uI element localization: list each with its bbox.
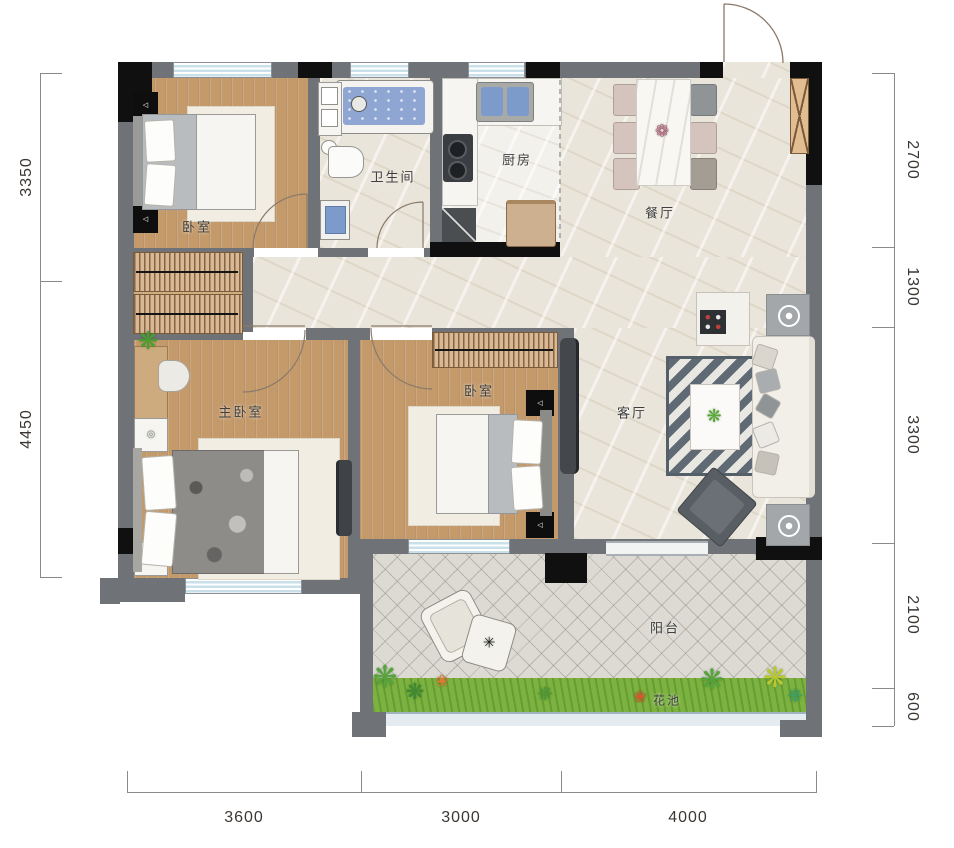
dim-left-0: 3350 [18,157,36,197]
flowerbed-plant-icon: ❋ [787,687,802,705]
kitchen-sink-basin-1 [481,87,503,116]
counter-basin-1 [321,87,338,105]
dim-right-3: 2100 [903,595,921,635]
bedroom-top-pillow-1 [144,119,176,163]
bedroom-mid-bed-sheet [436,414,492,514]
closet-rod [136,313,238,315]
master-bottom-ledge [100,594,185,602]
island-cooktop [700,310,726,334]
dining-chair [690,84,717,116]
master-desk-chair [158,360,190,392]
sofa-pillow [754,450,780,476]
flowerbed-plant-icon: ❋ [537,685,552,703]
dim-right-0: 2700 [903,140,921,180]
coffee-table-plant-icon: ❋ [706,407,721,425]
dining-chair [690,122,717,154]
dim-bottom-0: 3600 [224,809,264,827]
dining-chair [690,158,717,190]
dim-right-1: 1300 [903,267,921,307]
bedroom-top-pillow-2 [144,163,177,207]
bottom-dim-tick [127,771,128,792]
kitchen-sink [476,82,534,122]
toilet [328,146,364,178]
flowerbed-plant-icon: ❋ [763,664,786,692]
side-table-lamp-icon [778,515,800,537]
balcony-sill [373,712,806,726]
right-dim-tick [872,543,894,544]
tv-panel [560,338,579,474]
bedroom-mid-wardrobe [432,332,558,368]
entry-jamb-left [700,62,723,78]
top-wall-column-b [526,62,560,78]
bedroom-top-bed-sheet [196,114,256,210]
entry-opening-floor [723,62,790,78]
dim-bottom-2: 4000 [668,809,708,827]
bottom-dim-line [127,792,817,793]
right-dim-tick [872,726,894,727]
bedroom-mid-label: 卧室 [464,381,494,400]
bedroom-mid-window [408,539,510,554]
closet-rod [435,349,553,351]
stove-burner-1 [448,140,467,159]
flowerbed-flower-icon: ❀ [435,674,448,690]
master-nightstand-1: ◎ [134,418,168,452]
closet-top [133,252,243,292]
right-dim-tick [872,73,894,74]
bottom-dim-tick [361,771,362,792]
top-wall-column-a [298,62,332,78]
left-dim-line [40,73,41,578]
flowerbed-flower-icon: ❀ [633,690,646,706]
side-table-top [766,294,810,336]
closet-rod [136,271,238,273]
bedroom-top-nightstand-2: ◁ [133,206,158,233]
bedroom-top-bed-headboard [133,116,142,206]
master-bed-sheet [264,450,299,574]
bathtub [336,80,434,134]
right-dim-tick [872,247,894,248]
living-island [696,292,750,346]
dim-right-4: 600 [903,692,921,722]
lamp-icon: ◁ [143,102,148,109]
plant-icon: ❋ [138,330,158,354]
bathroom-label: 卫生间 [370,167,415,186]
side-table-bottom [766,504,810,546]
bedroom-mid-pillow-1 [511,419,543,465]
left-wall-black-bottom [118,528,134,554]
bottom-dim-tick [816,771,817,792]
bedroom-top-label: 卧室 [182,217,212,236]
bedroom-top-window [173,62,272,78]
lamp-icon: ◁ [143,216,148,223]
master-tv-panel [336,460,352,536]
master-bedroom-label: 主卧室 [218,402,263,421]
hall-wall-mid [306,328,370,340]
bottom-dim-tick [561,771,562,792]
stove-burner-2 [448,161,467,180]
flowerbed-plant-icon: ❋ [406,681,424,703]
dim-left-1: 4450 [18,409,36,449]
bathroom-sink-basin [325,206,346,234]
balcony-step-right [780,720,822,737]
dining-label: 餐厅 [645,203,675,222]
left-dim-tick [40,577,62,578]
shoe-cabinet [790,78,809,154]
flowerbed-plant-icon: ❋ [700,666,723,694]
centerpiece-flower-icon: ❁ [655,123,669,140]
bathroom-bottom-wall-left [318,248,368,257]
closet-right-wall [242,248,253,332]
bathtub-faucet-icon [351,96,367,112]
balcony-junction-column [545,553,587,583]
kitchen-corner-unit [442,208,476,242]
flowerbed-plant-icon: ❋ [372,663,397,693]
desk-item-icon: ◎ [147,430,156,440]
right-dim-tick [872,688,894,689]
side-table-lamp-icon [778,305,800,327]
fridge [506,200,556,247]
lamp-icon: ◁ [537,522,542,529]
right-dim-line [894,73,895,726]
master-bedroom-window [185,578,302,594]
kitchen-sink-basin-2 [507,87,529,116]
left-dim-tick [40,73,62,74]
accent-chair-cushion [689,479,745,535]
bathroom-counter [318,82,342,136]
kitchen-label: 厨房 [502,150,532,169]
balcony-step-left [352,712,386,737]
living-balcony-slider [606,541,708,556]
stove [443,134,473,182]
master-bed-blanket [172,450,266,574]
dim-bottom-1: 3000 [441,809,481,827]
lamp-icon: ◁ [537,400,542,407]
bathroom-sink [320,200,350,240]
bedroom-mid-pillow-2 [511,465,544,511]
balcony-label: 阳台 [650,618,680,637]
entry-door-arc [724,4,783,63]
balcony-left-wall [360,554,373,737]
dim-right-2: 3300 [903,415,921,455]
flower-bed-label: 花池 [653,692,681,709]
kitchen-window [468,62,525,78]
bathroom-window [350,62,409,78]
master-pillow-2 [141,511,178,568]
floorplan-canvas: ◁ ◁ ❁ [0,0,954,848]
right-dim-tick [872,327,894,328]
counter-basin-2 [321,109,338,127]
table-star-icon: ✳ [483,636,496,651]
living-room-label: 客厅 [617,403,647,422]
master-pillow-1 [141,455,177,511]
left-dim-tick [40,281,62,282]
